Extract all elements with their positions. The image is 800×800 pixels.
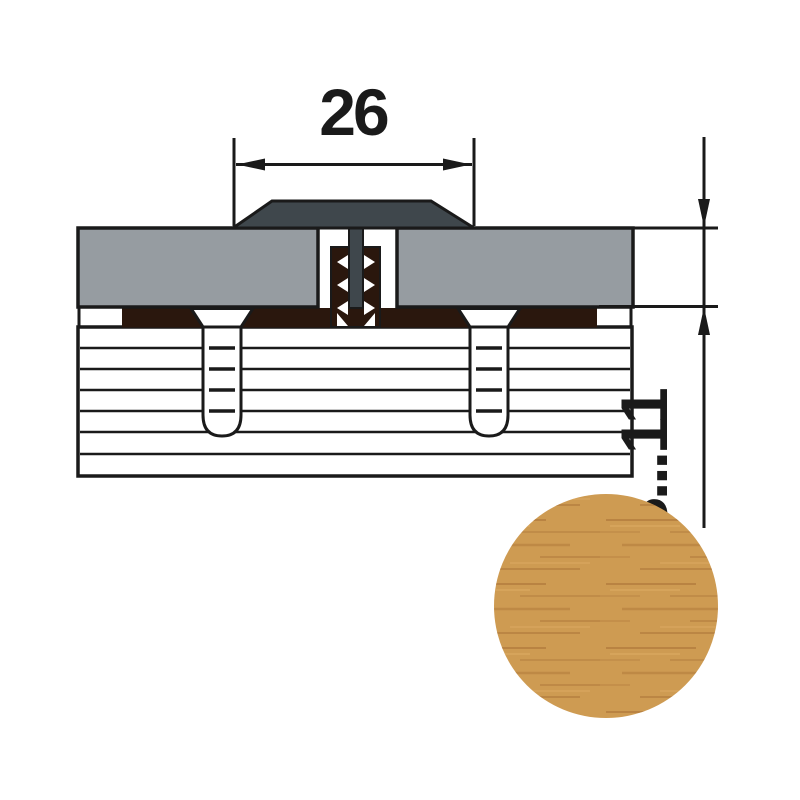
width-dimension-label: 26: [319, 75, 388, 149]
screw-right-head: [458, 309, 520, 328]
subfloor-layers: [78, 327, 632, 476]
screw-left-body: [203, 327, 241, 436]
screw-left-head: [191, 309, 253, 328]
arrowhead-down: [698, 199, 710, 227]
floor-panel-left: [78, 228, 318, 307]
wood-color-swatch: [494, 494, 718, 718]
screw-right-body: [470, 327, 508, 436]
profile-cross-section-drawing: 26 8...11: [0, 0, 800, 800]
product-diagram-canvas: 26 8...11: [0, 0, 800, 800]
swatch-grain-overlay: [494, 494, 718, 718]
t-profile-cap: [233, 201, 474, 228]
arrowhead-left: [237, 159, 265, 171]
floor-panel-right: [397, 228, 633, 307]
arrowhead-right: [443, 159, 471, 171]
t-profile-stem: [349, 228, 363, 308]
arrowhead-up: [698, 307, 710, 335]
